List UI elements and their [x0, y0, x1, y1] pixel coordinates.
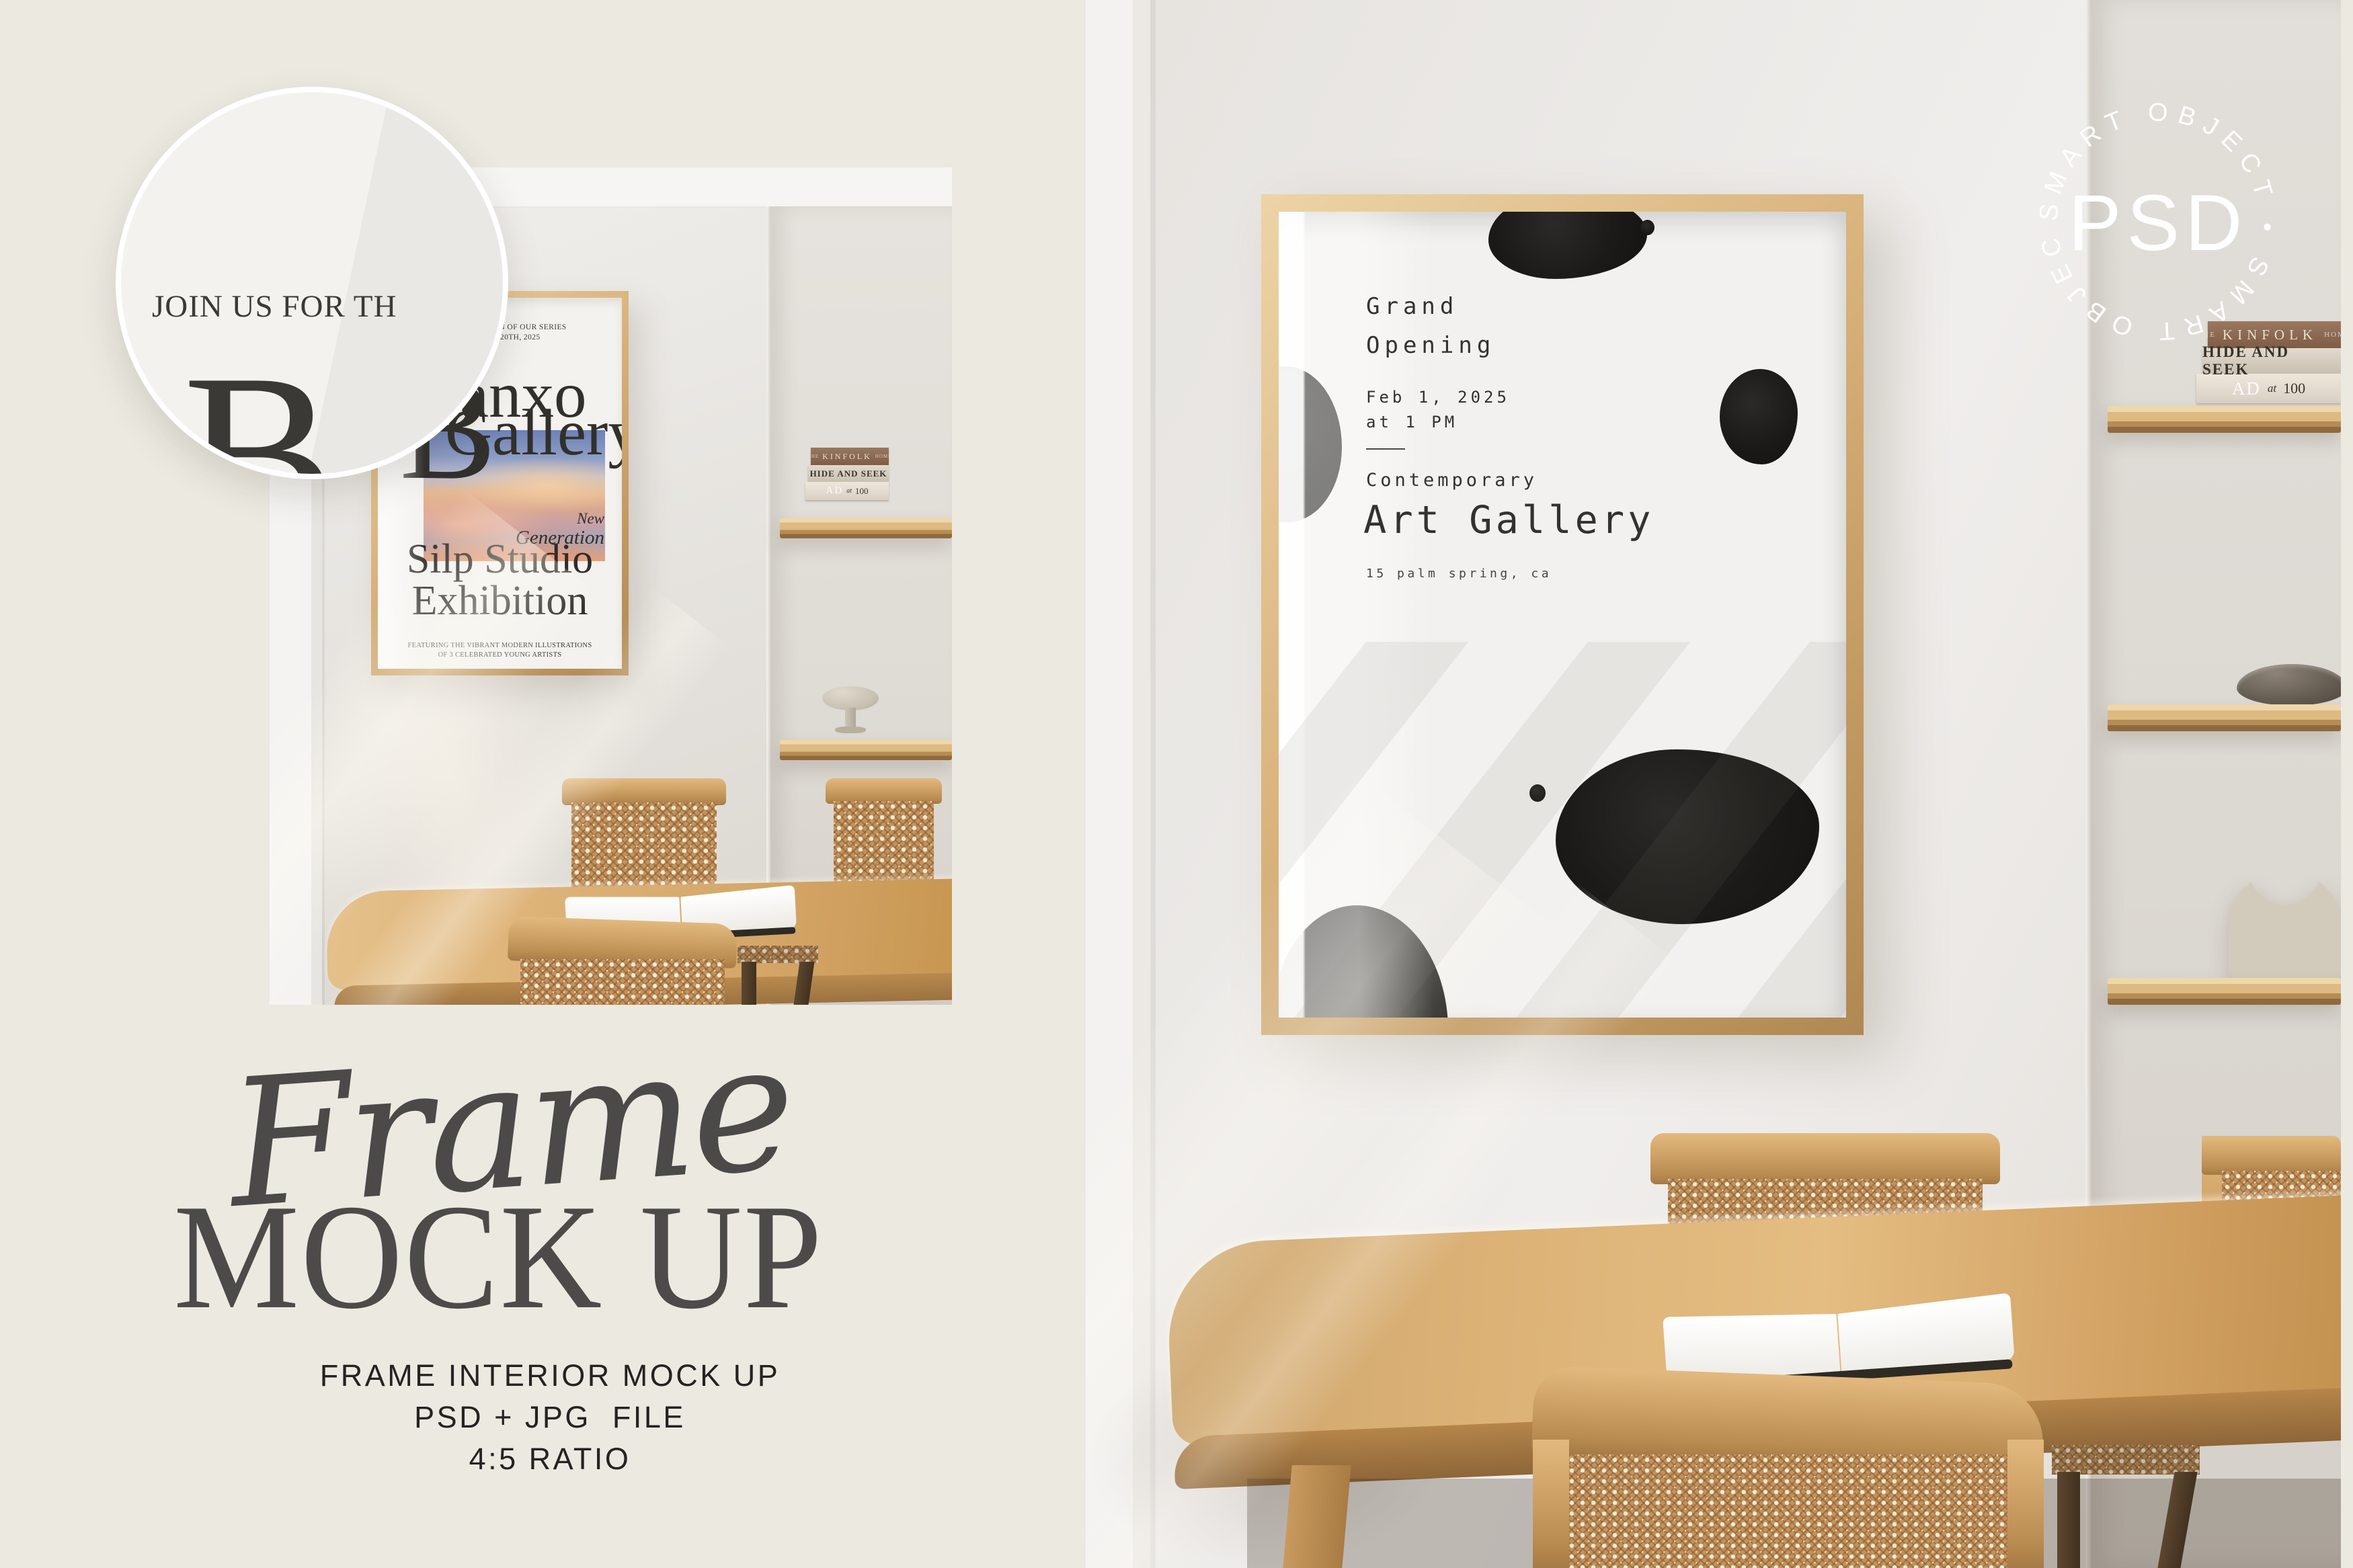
detail-line: 4:5 RATIO [214, 1438, 886, 1480]
dining-chair-back [826, 778, 942, 886]
light-shade [1279, 642, 1846, 1018]
interior-photo-right: THE KINFOLK HOME HIDE AND SEEK AD at 100 [1086, 0, 2341, 1568]
detail-line: PSD + JPG FILE [214, 1397, 886, 1438]
dark-wood-chair [737, 946, 818, 1005]
detail-line: FRAME INTERIOR MOCK UP [214, 1355, 886, 1397]
zoom-detail-circle: JOIN US FOR TH B [116, 87, 508, 479]
dark-wood-chair [2045, 1445, 2206, 1568]
table-leg [1283, 1465, 1351, 1568]
book-stack: THE KINFOLK HOME HIDE AND SEEK AD at 100 [805, 448, 889, 500]
poster-date: Feb 1, 2025 at 1 PM [1366, 385, 1510, 435]
pedestal-bowl-vase [822, 686, 879, 710]
poster-title: Gallery [445, 400, 622, 465]
arch-vase [2229, 870, 2341, 979]
book-spine-hide-and-seek: HIDE AND SEEK [808, 465, 889, 482]
shelf-board [2108, 978, 2341, 1005]
vase-stem [845, 708, 856, 728]
poster-category: Contemporary [1366, 470, 1538, 491]
shelf-board [2108, 406, 2341, 433]
poster-grand-opening: Grand Opening Feb 1, 2025 at 1 PM Contem… [1279, 212, 1846, 1018]
dining-chair-back [562, 778, 726, 889]
ink-dot [1640, 220, 1654, 235]
poster-address: 15 palm spring, ca [1366, 567, 1552, 581]
magnified-poster-text: JOIN US FOR TH [152, 288, 397, 325]
shelf-board [2108, 704, 2341, 731]
vase-foot [835, 727, 866, 733]
frame-mockup-graphic: THE KINFOLK HOME HIDE AND SEEK AD at 100 [0, 0, 2353, 1568]
magnified-dropcap: B [183, 339, 335, 479]
book-spine-kinfolk: THE KINFOLK HOME [811, 448, 889, 465]
psd-smart-object-badge: SMART OBJECT • SMART OBJECT • PSD [2017, 81, 2299, 363]
ink-blob [1720, 369, 1798, 464]
dining-chair-front [1533, 1375, 2044, 1568]
ink-blob [1488, 212, 1647, 279]
headline-mock-up: MOCK UP [173, 1182, 932, 1332]
poster-gallery-name: Art Gallery [1363, 498, 1654, 542]
poster-frame-right: Grand Opening Feb 1, 2025 at 1 PM Contem… [1261, 194, 1864, 1035]
shelf-board [780, 740, 952, 760]
badge-label: PSD [2069, 179, 2248, 267]
poster-title: Grand Opening [1366, 287, 1495, 365]
dining-chair-front [508, 920, 737, 1005]
shelf-board [780, 518, 952, 538]
divider-rule [1366, 448, 1405, 450]
book-spine-ad-at-100: AD at 100 [805, 482, 889, 500]
product-details: FRAME INTERIOR MOCK UP PSD + JPG FILE 4:… [214, 1355, 886, 1480]
